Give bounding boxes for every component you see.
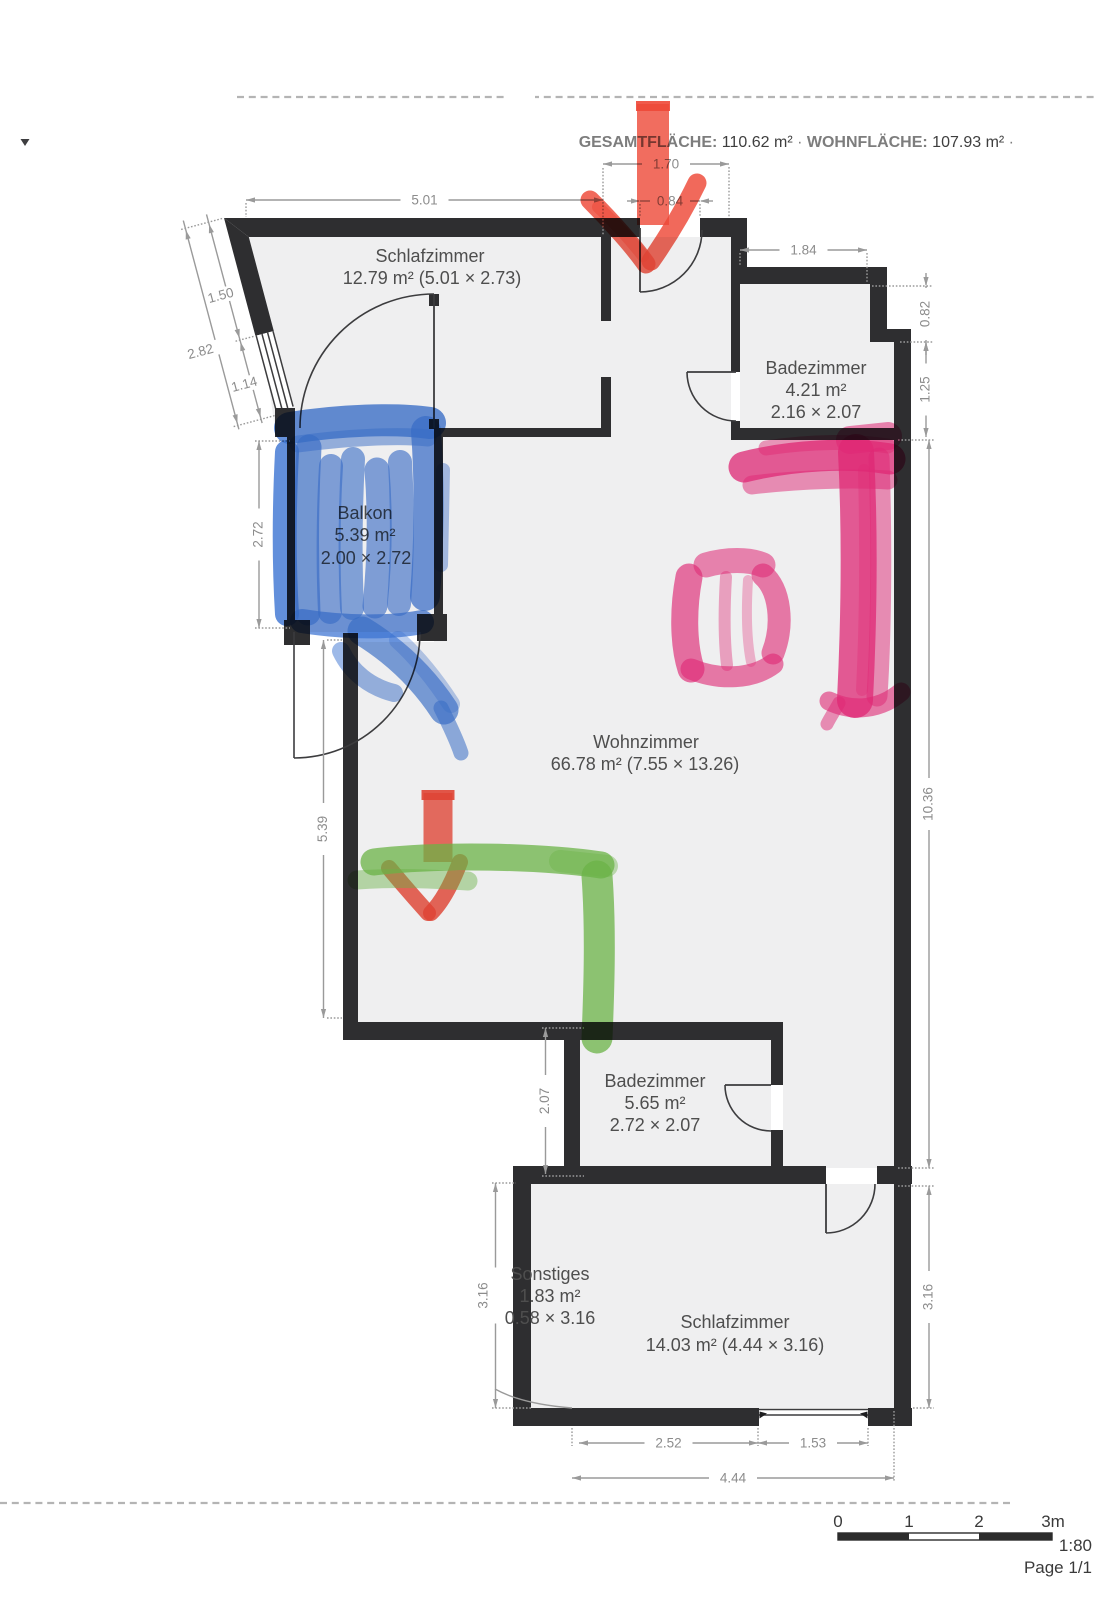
svg-text:Badezimmer: Badezimmer — [765, 358, 866, 378]
svg-text:1.84: 1.84 — [790, 243, 817, 258]
svg-text:Schlafzimmer: Schlafzimmer — [680, 1312, 789, 1332]
svg-text:Sonstiges: Sonstiges — [510, 1264, 589, 1284]
svg-text:1:80: 1:80 — [1059, 1536, 1092, 1555]
svg-text:10.36: 10.36 — [921, 787, 936, 821]
svg-text:0: 0 — [833, 1512, 842, 1531]
svg-text:0.82: 0.82 — [918, 301, 933, 327]
svg-text:2.72 × 2.07: 2.72 × 2.07 — [610, 1115, 701, 1135]
svg-text:5.39: 5.39 — [315, 816, 330, 842]
svg-text:Page 1/1: Page 1/1 — [1024, 1558, 1092, 1577]
svg-text:Wohnzimmer: Wohnzimmer — [593, 732, 699, 752]
svg-text:5.01: 5.01 — [411, 193, 437, 208]
svg-text:5.65 m²: 5.65 m² — [624, 1093, 685, 1113]
svg-text:2.16 × 2.07: 2.16 × 2.07 — [771, 402, 862, 422]
svg-text:0.58 × 3.16: 0.58 × 3.16 — [505, 1308, 596, 1328]
svg-text:2.52: 2.52 — [655, 1436, 681, 1451]
svg-text:1.53: 1.53 — [800, 1436, 826, 1451]
svg-text:3.16: 3.16 — [921, 1284, 936, 1310]
svg-text:2.07: 2.07 — [537, 1088, 552, 1114]
svg-text:1.25: 1.25 — [918, 376, 933, 402]
svg-text:66.78 m² (7.55 × 13.26): 66.78 m² (7.55 × 13.26) — [551, 754, 740, 774]
svg-text:2.72: 2.72 — [251, 521, 266, 547]
svg-text:3.16: 3.16 — [476, 1282, 491, 1308]
svg-text:14.03 m² (4.44 × 3.16): 14.03 m² (4.44 × 3.16) — [646, 1335, 825, 1355]
svg-text:1.83 m²: 1.83 m² — [519, 1286, 580, 1306]
svg-text:2: 2 — [974, 1512, 983, 1531]
svg-text:4.21 m²: 4.21 m² — [785, 380, 846, 400]
svg-text:3m: 3m — [1041, 1512, 1065, 1531]
svg-text:Badezimmer: Badezimmer — [604, 1071, 705, 1091]
svg-text:1: 1 — [904, 1512, 913, 1531]
svg-text:12.79 m² (5.01 × 2.73): 12.79 m² (5.01 × 2.73) — [343, 268, 522, 288]
svg-text:Schlafzimmer: Schlafzimmer — [375, 246, 484, 266]
svg-text:4.44: 4.44 — [720, 1471, 747, 1486]
